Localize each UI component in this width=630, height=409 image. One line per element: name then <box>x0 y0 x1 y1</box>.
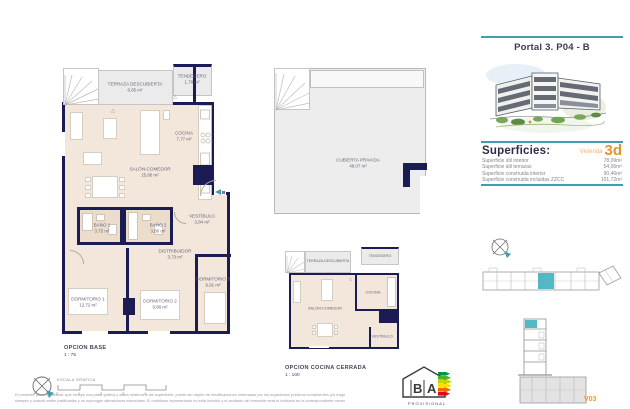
bathtub <box>128 212 138 240</box>
chair <box>85 185 91 190</box>
room-label-salon: SALÓN-COMEDOR <box>308 307 342 312</box>
vivienda-tag: Vivienda 3d <box>580 145 622 157</box>
room-area: 6,85 m² <box>108 87 163 93</box>
armchair <box>83 152 102 165</box>
chair <box>119 185 125 190</box>
stairwell <box>274 68 310 110</box>
room-name: SALÓN-COMEDOR <box>129 166 170 172</box>
room-label-cubierta: CUBIERTA PRIVADA 48,07 m² <box>336 157 380 168</box>
legal-text: El presente plano comercial, que incluye… <box>15 392 345 403</box>
window <box>82 331 108 334</box>
room-name: DORMITORIO 3 <box>196 276 230 282</box>
vivienda-label: Vivienda <box>580 149 603 157</box>
room-label-salon: SALÓN-COMEDOR 25,86 m² <box>129 166 170 177</box>
wall-segment <box>379 311 399 323</box>
room-label-dormitorio3: DORMITORIO 3 9,91 m² <box>196 276 230 287</box>
room-label-dormitorio2: DORMITORIO 2 9,88 m² <box>143 298 177 309</box>
room-name: TENDEDERO <box>178 73 207 79</box>
site-plan <box>481 264 623 298</box>
window <box>309 346 329 348</box>
building-illustration <box>486 61 610 139</box>
wall-segment <box>403 163 410 187</box>
chair <box>85 193 91 198</box>
wall-segment <box>126 248 129 334</box>
roof-notch <box>420 176 430 214</box>
room-area: 48,07 m² <box>336 163 380 169</box>
room-label-dormitorio1: DORMITORIO 1 12,72 m² <box>71 296 105 307</box>
chair <box>119 193 125 198</box>
room-area: 3,84 m² <box>189 219 215 225</box>
room-name: TERRAZA DESCUBIERTA <box>307 259 350 263</box>
version-label: V03 <box>584 396 596 403</box>
superficie-label: Superficie construida incluidas ZZCC <box>482 177 564 183</box>
chair <box>85 177 91 182</box>
stairs-fan-icon <box>275 69 311 111</box>
energy-letter-b: B <box>413 381 422 396</box>
coffee-table <box>103 118 117 139</box>
room-name: BAÑO 2 <box>150 222 167 228</box>
room-label-bano2: BAÑO 2 3,86 m² <box>150 222 167 233</box>
sofa <box>70 112 83 140</box>
plan-base-title: OPCION BASE <box>64 345 106 351</box>
room-label-cocina: COCINA 7,77 m² <box>175 130 193 141</box>
wall-segment <box>120 210 126 242</box>
plan-cerrada-scale: 1 : 100 <box>285 373 300 378</box>
room-label-cocina: COCINA <box>366 291 381 296</box>
legal-line-2: siempre y cuando estén justificadas y no… <box>15 398 345 404</box>
plan-sheet: △ △ TERRAZA DESCUBIERTA 6,85 m² TENDEDER… <box>0 0 630 409</box>
wall-segment <box>170 210 173 242</box>
section-marker-label: B <box>222 190 225 195</box>
sink <box>96 214 105 221</box>
wall-segment <box>195 254 231 257</box>
legal-line-1: El presente plano comercial, que incluye… <box>15 392 345 398</box>
room-area: 3,75 m² <box>94 228 111 234</box>
superficie-value: 101,72m² <box>601 177 622 183</box>
tv-unit <box>163 110 170 120</box>
floorplan-cocina-cerrada: △ TERRAZA DESCUBIERTA TENDEDERO SALÓN-CO… <box>283 247 401 353</box>
room-area: 9,88 m² <box>143 304 177 310</box>
room-name: TERRAZA DESCUBIERTA <box>108 81 163 87</box>
page-title: Portal 3. P04 - B <box>481 42 623 53</box>
room-name: DORMITORIO 2 <box>143 298 177 304</box>
room-area: 25,86 m² <box>129 172 170 178</box>
compass-icon <box>489 236 513 260</box>
energy-letter-a: A <box>427 381 437 396</box>
room-label-tendedero: TENDEDERO <box>369 254 392 258</box>
superficies-table: Superficie útil interior 78,09m² Superfi… <box>482 158 622 183</box>
scalebar <box>57 382 167 392</box>
room-name: VESTÍBULO <box>189 213 215 219</box>
room-name: BAÑO 1 <box>94 222 111 228</box>
room-label-tendedero: TENDEDERO 1,78 m² <box>178 73 207 84</box>
sofa <box>293 281 301 303</box>
vent-symbol-icon: △ <box>173 95 177 100</box>
wall-segment <box>355 275 357 311</box>
room-label-vestibulo: VESTÍBULO 3,84 m² <box>189 213 215 224</box>
roof-pergola <box>310 70 424 88</box>
vent-symbol-icon: △ <box>111 109 115 114</box>
section-marker-b: B <box>214 189 226 195</box>
kitchen-counter <box>387 277 396 307</box>
plan-cerrada-title: OPCION COCINA CERRADA <box>285 365 366 371</box>
stairs-fan-icon <box>286 252 306 274</box>
dining-table <box>317 323 333 337</box>
room-name: VESTÍBULO <box>371 335 392 340</box>
dining-table <box>92 176 118 198</box>
room-area: 9,91 m² <box>196 282 230 288</box>
room-label-terraza: TERRAZA DESCUBIERTA <box>307 259 350 263</box>
floorplan-cubierta: CUBIERTA PRIVADA 48,07 m² <box>270 64 430 216</box>
window <box>148 331 170 334</box>
room-label-terraza: TERRAZA DESCUBIERTA 6,85 m² <box>108 81 163 92</box>
room-area: 1,78 m² <box>178 79 207 85</box>
superficies-title: Superficies: <box>482 145 550 157</box>
plan-base-scale: 1 : 75 <box>64 353 76 358</box>
chair <box>119 177 125 182</box>
building-section <box>518 314 592 406</box>
divider-line <box>481 141 623 143</box>
floorplan-opcion-base: △ △ TERRAZA DESCUBIERTA 6,85 m² TENDEDER… <box>62 62 232 337</box>
energy-caption: PROVISIONAL <box>398 401 456 406</box>
wall-segment <box>195 257 198 334</box>
room-name: COCINA <box>366 291 381 296</box>
room-label-distribuidor: DISTRIBUIDOR 3,73 m² <box>159 248 192 259</box>
sink <box>142 214 151 221</box>
room-name: DORMITORIO 1 <box>71 296 105 302</box>
wall-segment <box>77 210 80 242</box>
chair <box>334 331 338 335</box>
closet <box>123 298 135 315</box>
sideboard <box>140 110 160 155</box>
room-area: 7,77 m² <box>175 136 193 142</box>
superficies-row: Superficie construida incluidas ZZCC 101… <box>482 177 622 183</box>
room-name: DISTRIBUIDOR <box>159 248 192 254</box>
room-name: TENDEDERO <box>369 254 392 258</box>
room-label-bano1: BAÑO 1 3,75 m² <box>94 222 111 233</box>
energy-arrow <box>438 372 450 376</box>
chair <box>334 325 338 329</box>
room-area: 3,86 m² <box>150 228 167 234</box>
room-area: 3,73 m² <box>159 254 192 260</box>
section-arrow-icon <box>215 189 221 195</box>
energy-certificate-logo: B A <box>400 364 454 400</box>
room-area: 12,72 m² <box>71 302 105 308</box>
bed <box>204 292 226 324</box>
room-label-vestibulo: VESTÍBULO <box>371 335 392 340</box>
window <box>62 132 65 156</box>
stairs-fan-icon <box>64 69 100 106</box>
divider-line <box>481 184 623 186</box>
room-name: COCINA <box>175 130 193 136</box>
shower <box>82 213 93 231</box>
sideboard <box>321 279 333 301</box>
vivienda-code: 3d <box>604 145 622 157</box>
room-name: SALÓN-COMEDOR <box>308 307 342 312</box>
chair <box>312 331 316 335</box>
stairwell <box>63 68 99 105</box>
superficies-header: Superficies: Vivienda 3d <box>482 145 622 157</box>
chair <box>312 325 316 329</box>
wall-segment <box>77 242 173 245</box>
room-name: CUBIERTA PRIVADA <box>336 157 380 163</box>
vent-symbol-icon: △ <box>349 277 352 281</box>
stairwell <box>285 251 305 273</box>
divider-line <box>481 36 623 38</box>
